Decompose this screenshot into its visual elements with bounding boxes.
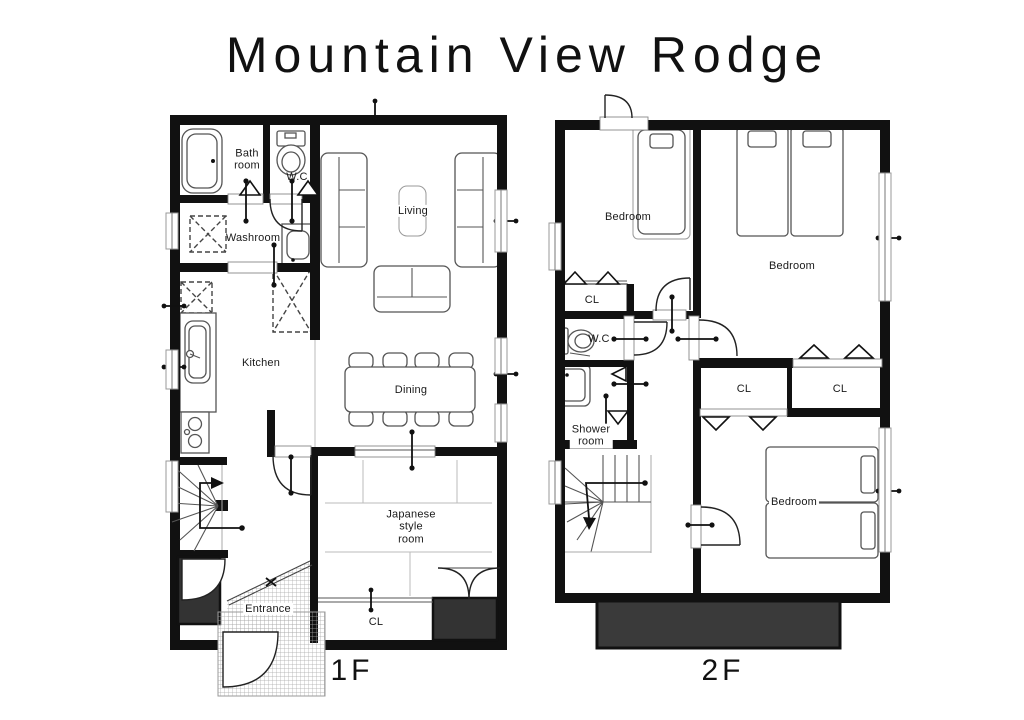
stairs-icon [172,465,245,551]
pantry-area [273,269,311,332]
room-label-dining: Dining [395,384,427,396]
bed-lower-top-icon [766,447,878,502]
sofa-right-icon [455,153,501,267]
room-label-wc-2f: W.C [588,333,609,345]
room-label-washroom: Washroom [226,232,280,244]
vanity-sink-icon [282,224,314,264]
room-label-closet-left: CL [737,383,751,395]
room-label-closet-right: CL [833,383,847,395]
japanese-room-storage [433,598,497,640]
room-label-closet-1f: CL [369,616,383,628]
closet-right-front [793,359,882,367]
floor1-plan [162,99,519,696]
floor1-label: 1F [330,654,373,688]
room-label-bedroom-single: Bedroom [605,211,651,223]
sofa-left-icon [321,153,367,267]
bed-twin-left-icon [737,127,788,236]
floor2-plan [549,95,901,648]
stairs-2f-icon [565,455,651,553]
room-label-shower: Shower room [570,424,613,449]
room-label-bedroom-double: Bedroom [769,496,819,508]
room-label-living: Living [396,205,430,217]
floor2-label: 2F [701,654,744,688]
floorplan-page: Mountain View Rodge Bath room W.C Washro… [0,0,1024,720]
room-label-japanese-room: Japanese style room [386,509,435,546]
room-label-bathroom: Bath room [234,148,260,173]
room-label-entrance: Entrance [243,603,293,615]
stove-icon [181,412,209,453]
bath-door-triangle [240,181,260,195]
sofa-bottom-icon [374,266,450,312]
kitchen-sink-icon [185,321,210,383]
balcony [597,601,840,648]
bathtub-icon [182,129,222,193]
floorplan-canvas [0,0,1024,720]
washing-machine-area [190,216,226,252]
room-label-closet-hall: CL [585,294,599,306]
bed-twin-right-icon [791,127,843,236]
storage-double-door [438,568,500,599]
toilet-icon [277,131,305,175]
page-title: Mountain View Rodge [226,26,828,84]
room-label-wc-1f: W.C [286,171,307,183]
refrigerator-area [181,282,212,313]
bed-lower-bottom-icon [766,503,878,558]
room-label-kitchen: Kitchen [242,357,280,369]
closet-left-front [700,409,787,416]
room-label-bedroom-twin: Bedroom [769,260,815,272]
